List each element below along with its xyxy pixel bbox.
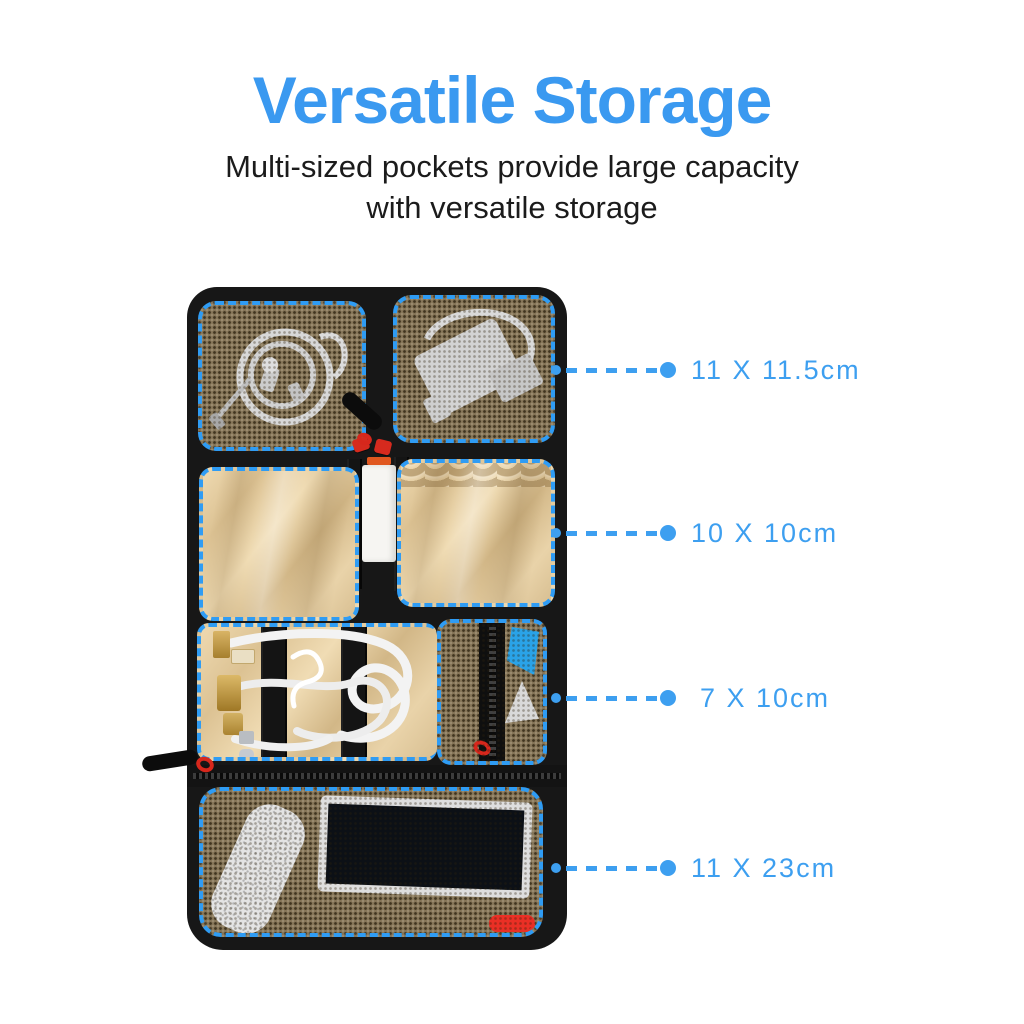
tablet-device xyxy=(317,795,532,898)
earphone-cable-graphic xyxy=(202,305,362,447)
cable-straps-panel xyxy=(197,623,437,761)
subtitle-line-1: Multi-sized pockets provide large capaci… xyxy=(225,149,799,184)
charger-graphic xyxy=(397,299,551,439)
fabric-folds xyxy=(203,471,355,617)
power-bank xyxy=(203,796,313,937)
callout-anchor-dot xyxy=(551,365,561,375)
blue-item xyxy=(507,627,539,675)
callout-pocket-4: 11 X 23cm xyxy=(551,851,836,885)
callout-dashed-line xyxy=(566,866,658,871)
middle-left-tan-pocket xyxy=(199,467,359,621)
usb-a-connector-icon xyxy=(213,631,230,658)
callout-dashed-line xyxy=(566,368,658,373)
fabric-folds xyxy=(401,463,551,603)
subtitle-line-2: with versatile storage xyxy=(366,190,657,225)
hdmi-connector-icon xyxy=(217,675,241,711)
size-label: 11 X 11.5cm xyxy=(691,355,861,386)
elastic-ruffle xyxy=(401,463,551,487)
callout-pocket-3: 7 X 10cm xyxy=(551,681,830,715)
white-charger xyxy=(362,465,396,562)
top-left-mesh-pocket xyxy=(198,301,366,451)
callout-dashed-line xyxy=(566,531,658,536)
marketing-slide: Versatile Storage Multi-sized pockets pr… xyxy=(0,0,1024,1024)
page-title: Versatile Storage xyxy=(0,62,1024,138)
callout-anchor-dot xyxy=(551,863,561,873)
red-zipper-slider-icon xyxy=(374,438,393,455)
horizontal-zipper xyxy=(187,765,567,787)
callout-dashed-line xyxy=(566,696,658,701)
callout-anchor-dot xyxy=(551,528,561,538)
orange-zipper-tape xyxy=(367,457,391,465)
callout-pocket-1: 11 X 11.5cm xyxy=(551,353,861,387)
callout-end-dot xyxy=(660,525,676,541)
callout-anchor-dot xyxy=(551,693,561,703)
size-label: 11 X 23cm xyxy=(691,853,836,884)
top-right-mesh-pocket xyxy=(393,295,555,443)
cable-organizer-bag xyxy=(187,287,567,950)
size-label: 10 X 10cm xyxy=(691,518,838,549)
lightning-connector-icon xyxy=(231,649,255,664)
callout-pocket-2: 10 X 10cm xyxy=(551,516,838,550)
bottom-mesh-pocket xyxy=(199,787,543,937)
usb-c-connector-icon xyxy=(239,749,254,760)
red-brand-tab xyxy=(489,915,535,932)
callout-end-dot xyxy=(660,690,676,706)
page-subtitle: Multi-sized pockets provide large capaci… xyxy=(0,146,1024,228)
size-label: 7 X 10cm xyxy=(700,683,830,714)
middle-right-tan-pocket xyxy=(397,459,555,607)
callout-end-dot xyxy=(660,860,676,876)
gray-item xyxy=(505,681,539,723)
micro-usb-connector-icon xyxy=(239,731,254,744)
callout-end-dot xyxy=(660,362,676,378)
zip-mesh-pocket xyxy=(437,619,547,765)
